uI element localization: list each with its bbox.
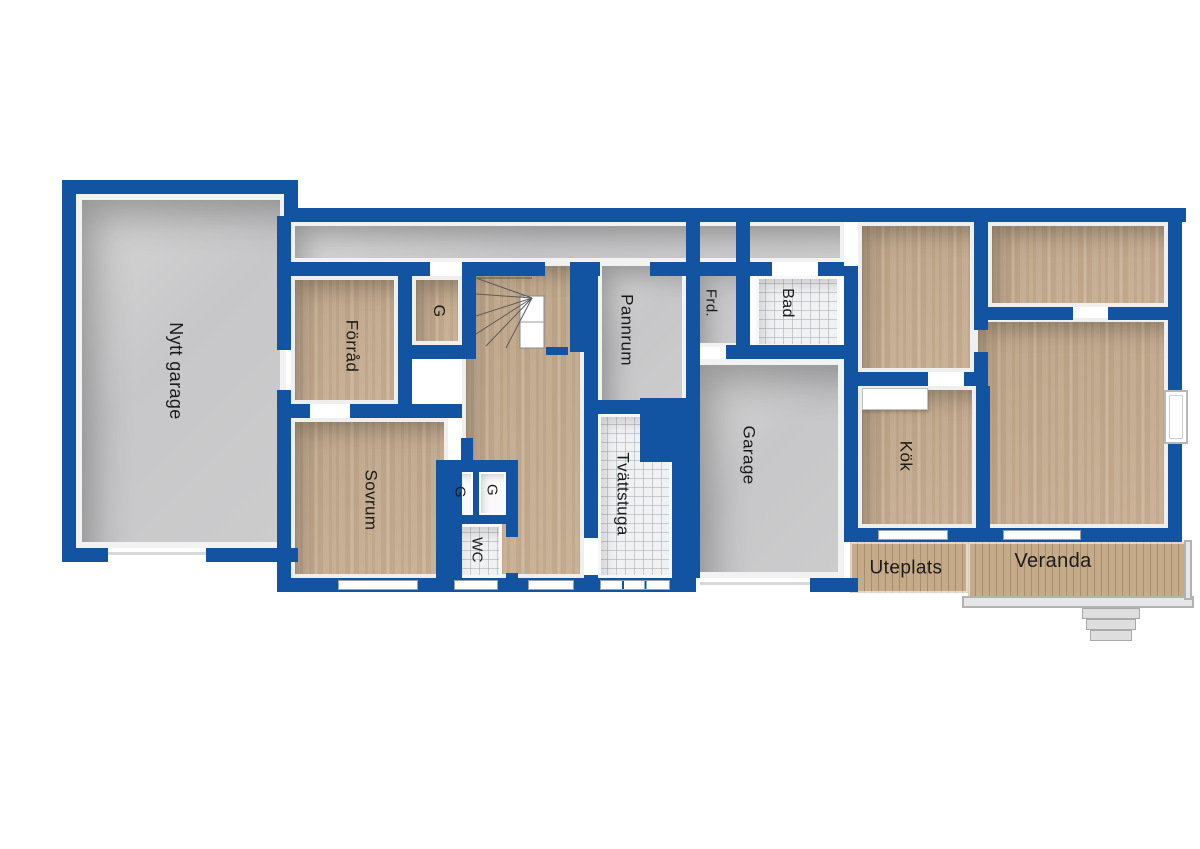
- room-label-pannrum: Pannrum: [619, 294, 636, 366]
- room-label-veranda: Veranda: [1014, 551, 1091, 571]
- sovrum-window: [338, 580, 418, 590]
- garage-door-threshold-center: [700, 582, 810, 585]
- wall-segment: [1108, 307, 1168, 320]
- veranda-rail-bottom: [962, 596, 1194, 608]
- room-label-sovrum: Sovrum: [363, 470, 380, 531]
- bad-floor: [756, 276, 840, 347]
- wall-segment: [277, 216, 291, 350]
- wall-segment: [412, 345, 476, 359]
- room-label-uteplats: Uteplats: [870, 559, 943, 578]
- room-label-nytt-garage: Nytt garage: [167, 322, 185, 419]
- livingroom-bay-window: [1164, 390, 1188, 444]
- wall-segment: [736, 222, 750, 345]
- wall-segment: [584, 400, 640, 414]
- wall-segment: [291, 404, 310, 418]
- garage-floor: [694, 359, 844, 578]
- room-label-wc: WC: [470, 537, 485, 563]
- wall-segment: [964, 372, 974, 386]
- winder-staircase: [476, 276, 572, 350]
- wall-segment: [506, 460, 518, 537]
- wall-segment: [810, 578, 858, 592]
- wall-segment: [546, 347, 568, 355]
- livingroom-window: [1003, 530, 1081, 540]
- room-label-g-closet-left: G: [453, 486, 468, 498]
- pannrum-floor: [598, 262, 686, 405]
- wall-segment: [436, 460, 448, 592]
- wall-segment: [686, 222, 700, 578]
- wall-segment: [726, 345, 844, 359]
- veranda-step-3: [1090, 630, 1132, 641]
- wall-segment: [398, 262, 412, 404]
- wall-segment: [650, 262, 772, 276]
- room-label-bad: Bad: [779, 288, 795, 318]
- wall-segment: [844, 266, 858, 528]
- room-label-g-closet-right: G: [485, 484, 500, 496]
- wall-segment: [988, 307, 1073, 320]
- wall-segment: [640, 398, 688, 462]
- garage-door-threshold-left: [106, 552, 206, 555]
- wall-segment: [1168, 442, 1182, 542]
- room-label-garage: Garage: [741, 425, 758, 484]
- bedroom1-floor: [858, 222, 974, 372]
- tvattstuga-window: [600, 580, 670, 590]
- wall-segment: [62, 180, 298, 194]
- wall-segment: [277, 390, 291, 592]
- room-label-kok: Kök: [898, 441, 915, 472]
- room-label-g-hall: G: [430, 305, 446, 318]
- wall-segment: [976, 386, 990, 542]
- veranda-step-1: [1082, 608, 1140, 619]
- wall-segment: [284, 208, 1186, 222]
- room-label-frd: Frd.: [704, 289, 719, 317]
- room-label-tvattstuga: Tvättstuga: [615, 452, 632, 535]
- wall-segment: [974, 222, 988, 330]
- room-label-forrad: Förråd: [344, 320, 361, 372]
- wall-segment: [672, 462, 686, 578]
- wall-segment: [473, 470, 479, 517]
- wc-window: [454, 580, 498, 590]
- wall-segment: [584, 575, 598, 592]
- wall-segment: [448, 515, 506, 524]
- wall-segment: [506, 573, 518, 592]
- corridor-floor: [291, 222, 844, 262]
- floor-plan: Nytt garageFörrådGSovrumGGWCPannrumTvätt…: [0, 0, 1200, 849]
- wall-segment: [461, 438, 473, 462]
- livingroom-floor: [974, 318, 1168, 528]
- wall-segment: [1168, 208, 1182, 392]
- wall-segment: [350, 404, 462, 418]
- veranda-step-2: [1086, 619, 1136, 630]
- kitchen-counter: [862, 388, 928, 410]
- stair-treads: [476, 276, 572, 350]
- wall-segment: [974, 352, 988, 386]
- wall-segment: [62, 180, 76, 562]
- wall-segment: [858, 372, 928, 386]
- veranda-rail-right: [1184, 540, 1192, 600]
- wall-segment: [818, 262, 844, 276]
- wall-segment: [62, 548, 108, 562]
- kok-window: [878, 530, 948, 540]
- hall-window: [528, 580, 574, 590]
- bedroom2-floor: [988, 222, 1168, 307]
- wall-segment: [570, 262, 584, 352]
